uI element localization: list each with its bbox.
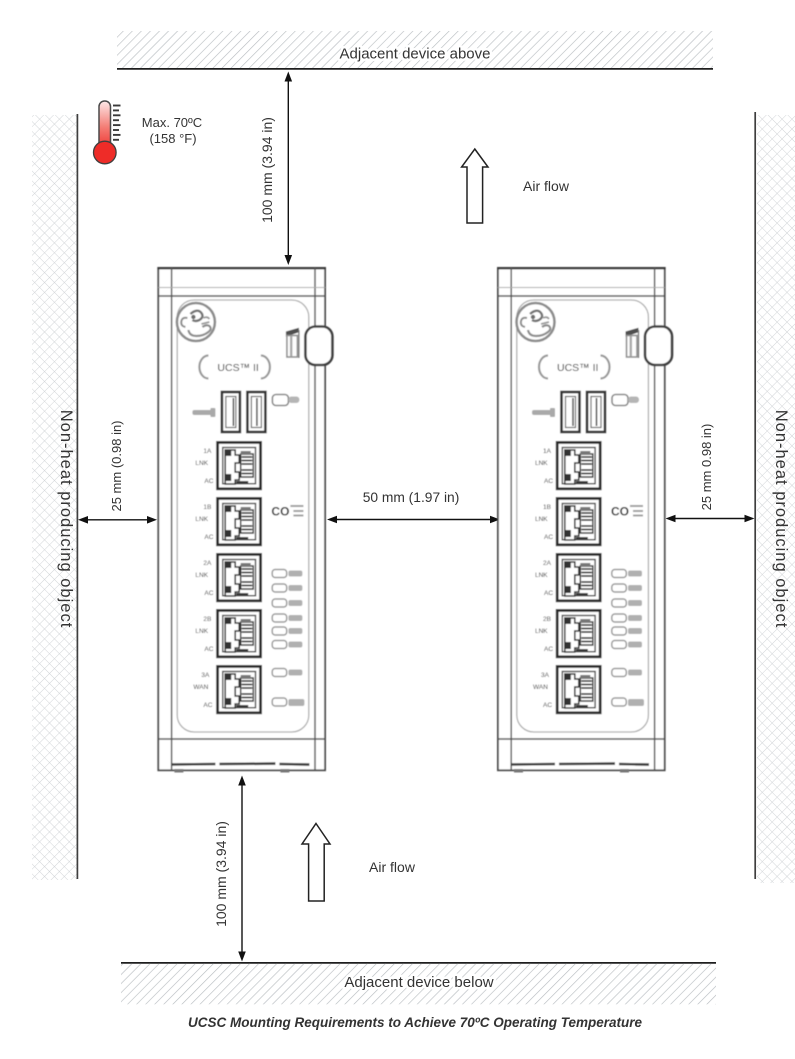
svg-text:Air flow: Air flow [523, 178, 570, 194]
svg-text:Air flow: Air flow [369, 859, 416, 875]
svg-text:Non-heat producing object: Non-heat producing object [57, 410, 75, 629]
svg-text:Adjacent device above: Adjacent device above [340, 46, 491, 63]
svg-text:50 mm (1.97 in): 50 mm (1.97 in) [363, 490, 460, 505]
svg-text:25 mm 0.98 in): 25 mm 0.98 in) [699, 424, 714, 511]
svg-text:(158 °F): (158 °F) [149, 131, 196, 146]
svg-text:100 mm (3.94 in): 100 mm (3.94 in) [213, 821, 229, 927]
svg-text:Max. 70ºC: Max. 70ºC [142, 115, 202, 130]
svg-text:Adjacent device below: Adjacent device below [344, 974, 493, 991]
svg-text:UCSC Mounting Requirements to: UCSC Mounting Requirements to Achieve 70… [188, 1015, 642, 1030]
svg-text:25 mm (0.98 in): 25 mm (0.98 in) [109, 420, 124, 511]
svg-text:Non-heat producing object: Non-heat producing object [772, 410, 790, 629]
svg-text:100 mm (3.94 in): 100 mm (3.94 in) [259, 117, 275, 223]
